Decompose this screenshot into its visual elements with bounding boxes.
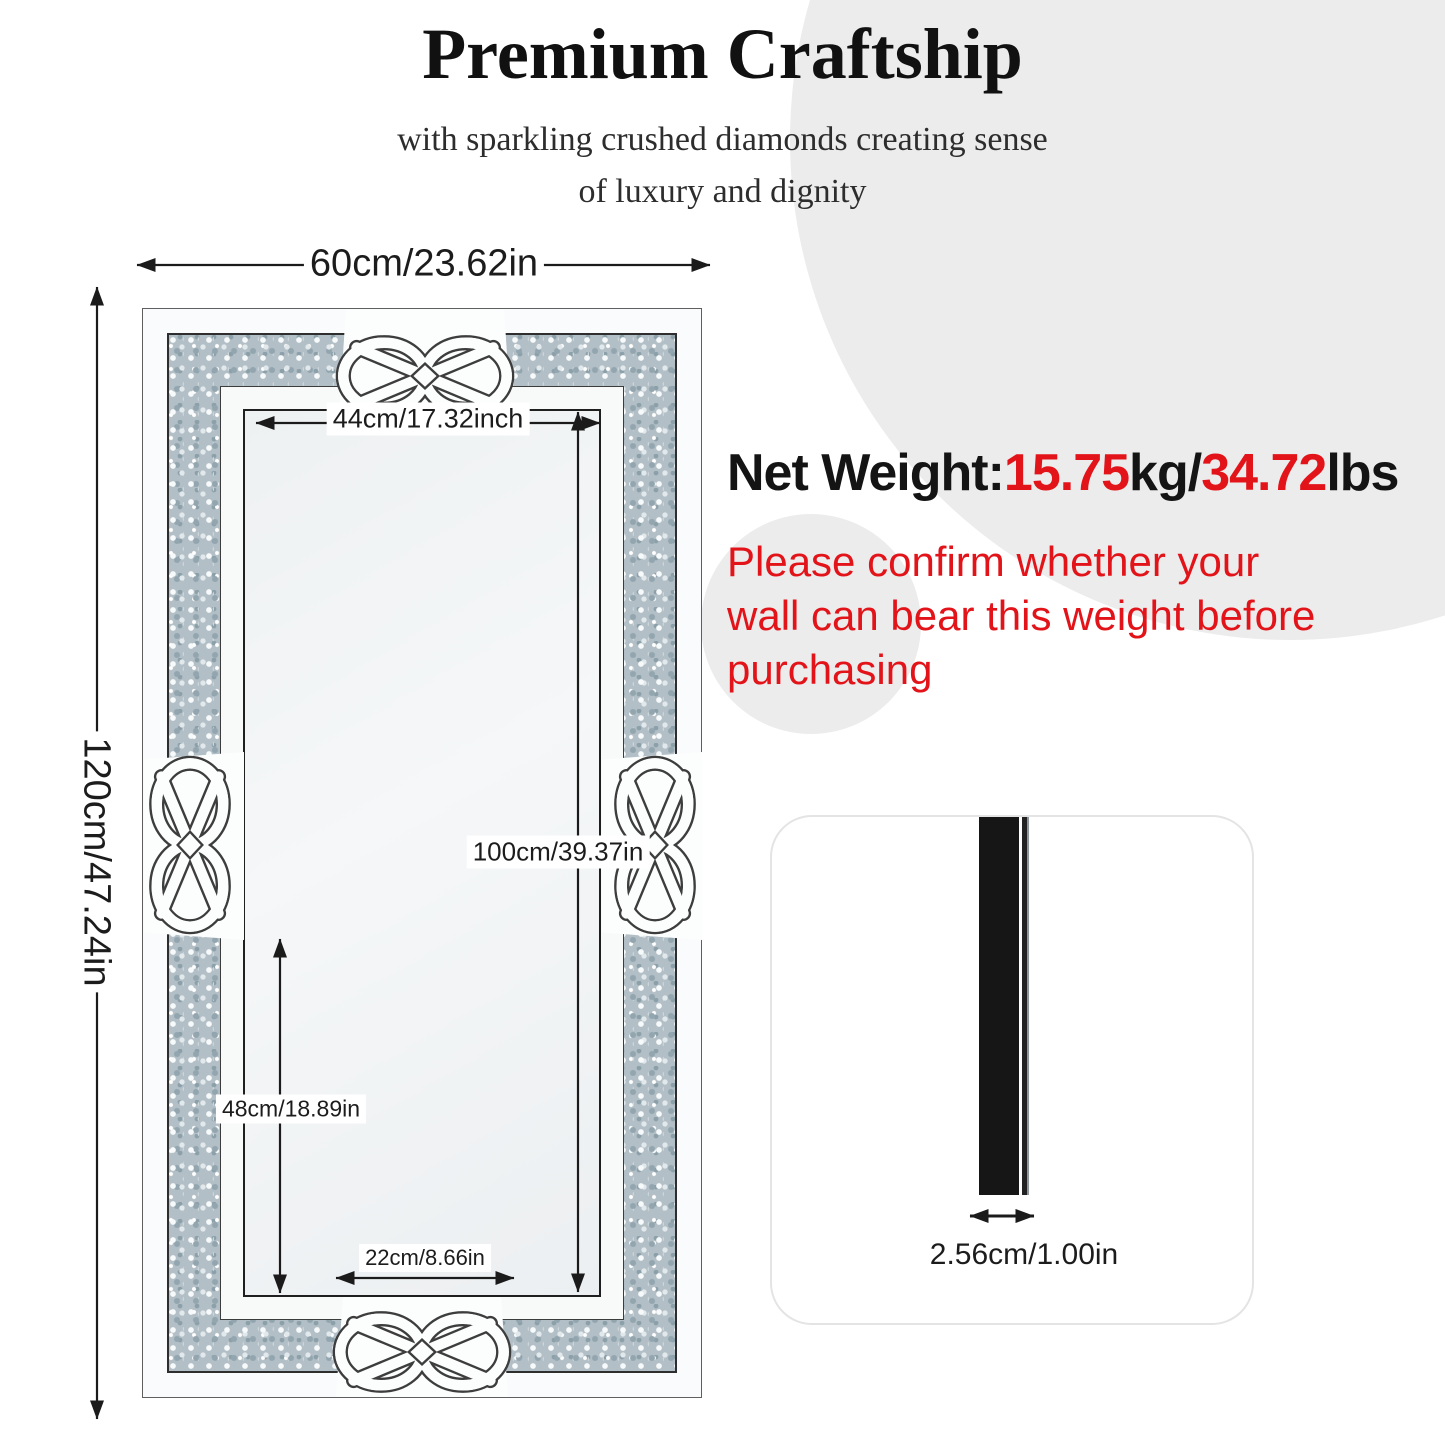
outer-width-label: 60cm/23.62in <box>304 242 544 287</box>
header: Premium Craftship with sparkling crushed… <box>0 18 1445 218</box>
net-weight-segment: 34.72 <box>1201 444 1326 502</box>
page-title: Premium Craftship <box>0 18 1445 90</box>
side-profile-bar <box>979 817 1029 1195</box>
celtic-knot-bottom <box>327 1292 517 1412</box>
thickness-label: 2.56cm/1.00in <box>930 1238 1118 1272</box>
net-weight-segment: 15.75 <box>1004 444 1129 502</box>
net-weight-segment: Net Weight: <box>727 444 1004 502</box>
page-subtitle: with sparkling crushed diamonds creating… <box>0 114 1445 218</box>
inner-width-label: 44cm/17.32inch <box>327 403 530 436</box>
weight-warning-text: Please confirm whether your wall can bea… <box>727 535 1427 697</box>
bottom-width-label: 22cm/8.66in <box>359 1244 491 1272</box>
product-infographic: Premium Craftship with sparkling crushed… <box>0 0 1445 1445</box>
lower-height-label: 48cm/18.89in <box>216 1095 366 1124</box>
inner-height-label: 100cm/39.37in <box>467 836 650 869</box>
net-weight-segment: kg/ <box>1129 444 1201 502</box>
outer-height-label: 120cm/47.24in <box>74 731 119 992</box>
celtic-knot-left <box>130 750 250 940</box>
net-weight-line: Net Weight:15.75kg/34.72lbs <box>727 443 1398 503</box>
thickness-panel: 2.56cm/1.00in <box>770 815 1254 1325</box>
net-weight-segment: lbs <box>1326 444 1398 502</box>
